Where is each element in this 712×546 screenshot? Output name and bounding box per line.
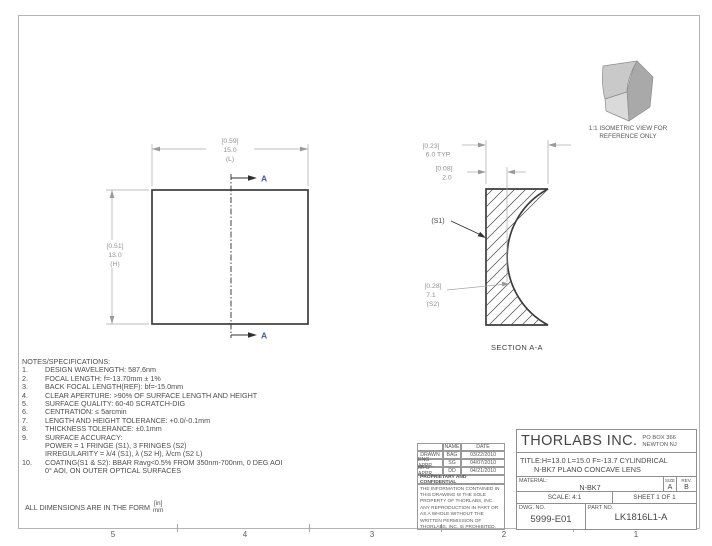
isometric-view bbox=[602, 61, 653, 121]
dimensions-form-note: ALL DIMENSIONS ARE IN THE FORM [in] mm bbox=[25, 501, 163, 514]
approvals-date-header: DATE bbox=[461, 443, 505, 451]
front-width-inches: [0.59] bbox=[221, 138, 238, 145]
dim-arrow bbox=[548, 143, 556, 148]
dim-arrow bbox=[478, 170, 486, 175]
section-arrow bbox=[248, 332, 257, 337]
dimensions-form-text: ALL DIMENSIONS ARE IN THE FORM bbox=[25, 503, 150, 512]
part-number: LK1816L1-A bbox=[586, 512, 696, 523]
titleblock-company-cell: THORLABS INC. PO BOX 366 NEWTON NJ bbox=[516, 429, 697, 453]
company-address: PO BOX 366 NEWTON NJ bbox=[642, 435, 676, 448]
leader-arrow bbox=[478, 232, 486, 238]
drawing-sheet: 5 4 3 2 1 .dim { font:6.8px "Liberation … bbox=[0, 0, 712, 546]
front-view: [0.59] 15.0 (L) [0.51] 13.0 (H) A A bbox=[106, 138, 308, 341]
section-label-top: A bbox=[261, 174, 267, 184]
front-width-mm: 15.0 bbox=[223, 147, 236, 154]
isometric-caption-line1: 1:1 ISOMETRIC VIEW FOR bbox=[558, 125, 698, 133]
radius-mm: 7.1 bbox=[426, 292, 436, 299]
proprietary-body: THE INFORMATION CONTAINED IN THIS DRAWIN… bbox=[417, 484, 505, 530]
front-height-inches: [0.51] bbox=[106, 243, 123, 250]
drawing-title-line1: TITLE:H=13.0 L=15.0 F=-13.7 CYLINDRICAL bbox=[520, 456, 668, 465]
surface1-label: (S1) bbox=[431, 218, 444, 225]
isometric-caption-line2: REFERENCE ONLY bbox=[558, 133, 698, 141]
section-view-title: SECTION A-A bbox=[491, 343, 543, 352]
approvals-name-header: NAME bbox=[443, 443, 461, 451]
center-thickness-mm: 2.0 bbox=[442, 175, 452, 182]
section-arrow bbox=[248, 175, 257, 180]
front-height-mm: 13.0 bbox=[108, 252, 121, 259]
notes-block: NOTES/SPECIFICATIONS: 1.DESIGN WAVELENGT… bbox=[22, 358, 412, 476]
dim-arrow bbox=[507, 170, 515, 175]
company-name: THORLABS INC. bbox=[521, 433, 637, 449]
titleblock-size-cell: SIZE A bbox=[663, 476, 677, 492]
part-label: PART NO. bbox=[588, 505, 613, 511]
section-view: [0.23] 6.0 TYP [0.08] 2.0 (S1) [0.28] 7.… bbox=[422, 140, 571, 352]
approvals-header-row: NAME DATE bbox=[417, 443, 505, 451]
isometric-caption: 1:1 ISOMETRIC VIEW FOR REFERENCE ONLY bbox=[558, 125, 698, 140]
rev-label: REV. bbox=[677, 478, 696, 483]
drawing-title-line2: N-BK7 PLANO CONCAVE LENS bbox=[534, 465, 641, 474]
radius-inches: [0.28] bbox=[424, 283, 441, 290]
size-label: SIZE bbox=[664, 478, 676, 483]
surface2-label: (S2) bbox=[427, 301, 440, 308]
dim-arrow bbox=[300, 147, 308, 152]
dim-arrow bbox=[110, 316, 115, 324]
section-label-bottom: A bbox=[261, 331, 267, 341]
titleblock-title-cell: TITLE:H=13.0 L=15.0 F=-13.7 CYLINDRICAL … bbox=[516, 452, 697, 477]
dim-arrow bbox=[110, 190, 115, 198]
center-thickness-inches: [0.08] bbox=[435, 166, 452, 173]
titleblock-material-cell: MATERIAL: N-BK7 bbox=[516, 476, 664, 492]
size-value: A bbox=[664, 484, 676, 491]
titleblock-part-cell: PART NO. LK1816L1-A bbox=[585, 503, 697, 530]
edge-thickness-mm: 6.0 TYP bbox=[426, 152, 451, 159]
dim-arrow bbox=[152, 147, 160, 152]
titleblock-rev-cell: REV. B bbox=[676, 476, 697, 492]
dimensions-form-fraction: [in] mm bbox=[153, 501, 163, 514]
dim-arrow bbox=[478, 143, 486, 148]
front-width-axis-label: (L) bbox=[226, 156, 234, 163]
edge-thickness-inches: [0.23] bbox=[422, 143, 439, 150]
lens-front-outline bbox=[152, 190, 308, 324]
dwg-number: 5999-E01 bbox=[517, 514, 585, 525]
front-height-axis-label: (H) bbox=[110, 261, 119, 268]
dwg-label: DWG. NO. bbox=[519, 505, 545, 511]
proprietary-header: PROPRIETARY AND CONFIDENTIAL bbox=[417, 475, 505, 484]
approvals-table: NAME DATE DRAWN BAG 03/22/2010 ENG APPR.… bbox=[417, 443, 505, 475]
titleblock-dwg-cell: DWG. NO. 5999-E01 bbox=[516, 503, 586, 530]
rev-value: B bbox=[677, 484, 696, 491]
note-item: 0° AOI, ON OUTER OPTICAL SURFACES bbox=[22, 467, 412, 475]
